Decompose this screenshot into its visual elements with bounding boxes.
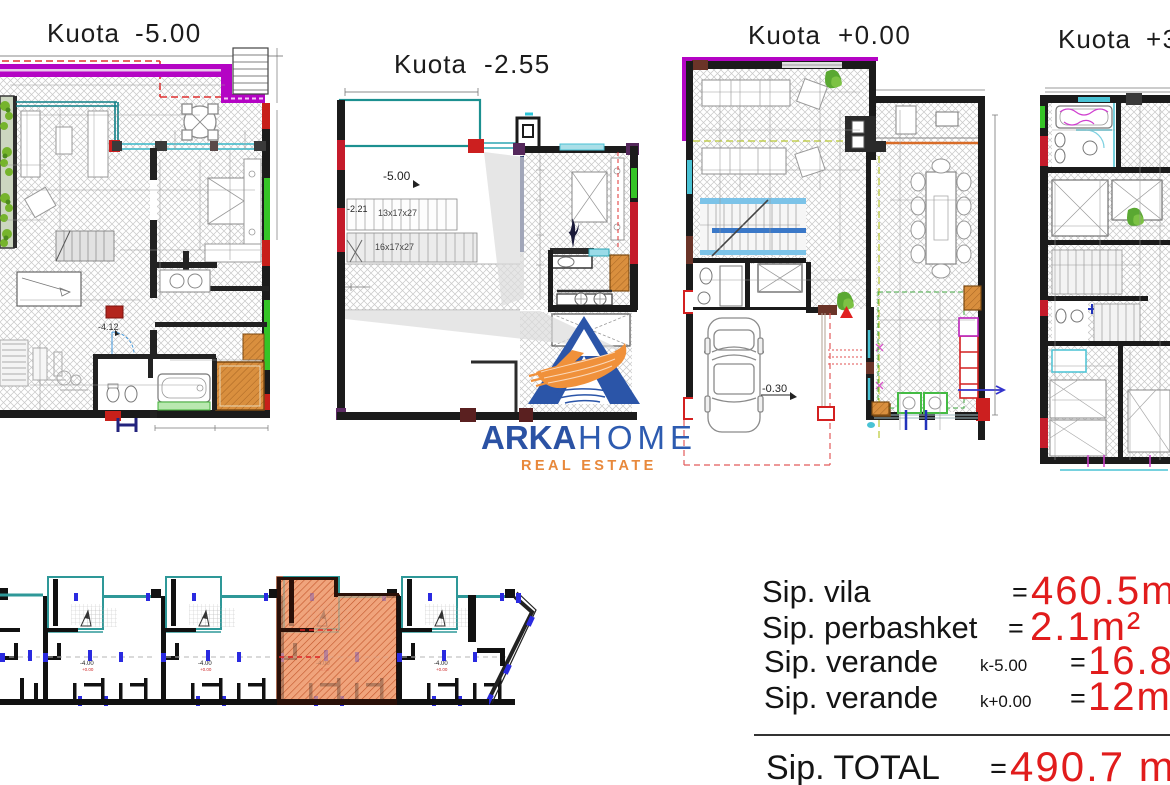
svg-text:+0.00: +0.00	[838, 20, 911, 50]
svg-text:13x17x27: 13x17x27	[378, 208, 417, 218]
svg-text:-0.30: -0.30	[762, 383, 787, 395]
svg-text:Sip. vila: Sip. vila	[762, 574, 871, 609]
svg-text:-2.55: -2.55	[484, 49, 551, 79]
svg-text:-2.21: -2.21	[347, 204, 368, 214]
svg-text:Sip. verande: Sip. verande	[764, 644, 938, 679]
svg-text:Kuota: Kuota	[1058, 24, 1131, 54]
svg-text:Kuota: Kuota	[748, 20, 821, 50]
svg-text:REAL ESTATE: REAL ESTATE	[521, 458, 657, 474]
svg-text:ARKA: ARKA	[481, 419, 576, 456]
svg-text:=: =	[1012, 577, 1028, 607]
svg-text:-5.00: -5.00	[135, 18, 202, 48]
svg-text:Kuota: Kuota	[47, 18, 120, 48]
svg-text:490.7 m²: 490.7 m²	[1010, 743, 1170, 785]
svg-text:-5.00: -5.00	[383, 169, 411, 183]
svg-text:16x17x27: 16x17x27	[375, 242, 414, 252]
svg-text:=: =	[1070, 683, 1086, 713]
svg-text:Sip. perbashket: Sip. perbashket	[762, 610, 978, 645]
svg-text:=: =	[990, 753, 1007, 785]
svg-text:k-5.00: k-5.00	[980, 656, 1027, 675]
svg-text:=: =	[1070, 647, 1086, 677]
svg-text:k+0.00: k+0.00	[980, 692, 1032, 711]
svg-text:=: =	[1008, 613, 1024, 643]
svg-text:Kuota: Kuota	[394, 49, 467, 79]
svg-text:+3.40: +3.40	[1146, 24, 1170, 54]
svg-text:Sip. TOTAL: Sip. TOTAL	[766, 749, 940, 785]
svg-text:12m²: 12m²	[1088, 675, 1170, 719]
svg-text:Sip. verande: Sip. verande	[764, 680, 938, 715]
svg-text:HOME: HOME	[578, 419, 697, 456]
